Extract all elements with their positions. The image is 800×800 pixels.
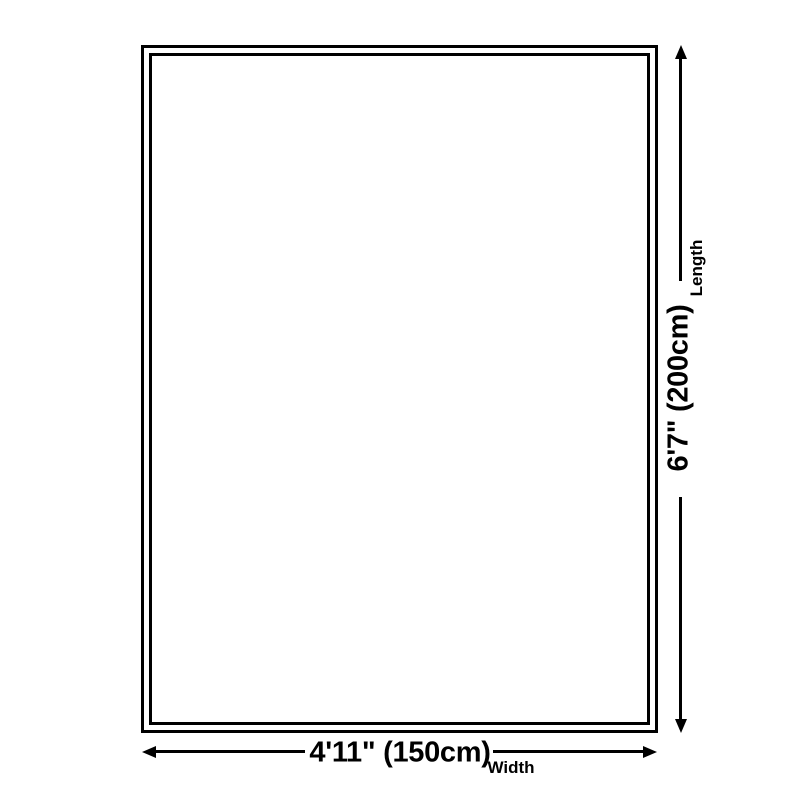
arrow-down-icon xyxy=(675,719,687,733)
length-label: Length xyxy=(687,240,707,297)
product-outline-outer xyxy=(141,45,658,733)
width-label: Width xyxy=(487,758,534,778)
size-diagram: Length 6'7" (200cm) 4'11" (150cm) Width xyxy=(0,0,800,800)
length-arrow-line-top xyxy=(679,57,682,281)
arrow-right-icon xyxy=(643,746,657,758)
width-arrow-line-left xyxy=(154,750,305,753)
length-arrow-line-bottom xyxy=(679,497,682,720)
width-arrow-line-right xyxy=(493,750,643,753)
product-outline-inner xyxy=(149,53,650,725)
width-value: 4'11" (150cm) xyxy=(309,737,490,770)
length-value: 6'7" (200cm) xyxy=(663,305,696,472)
